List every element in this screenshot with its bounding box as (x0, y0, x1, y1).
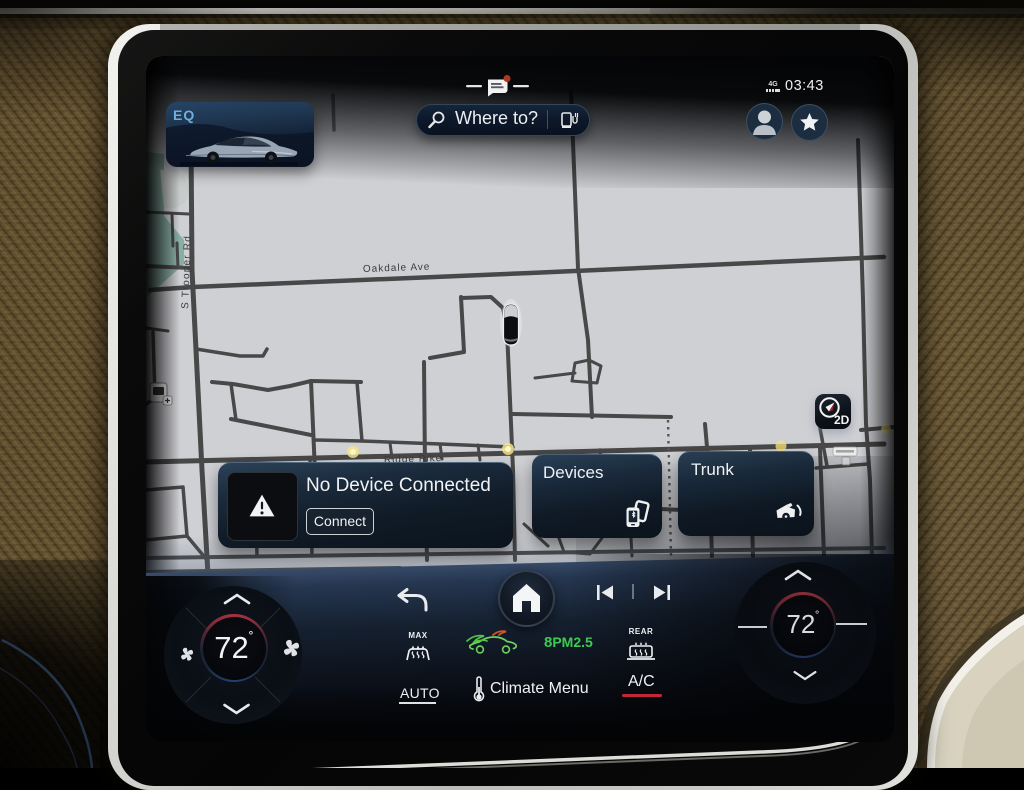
svg-text:2D: 2D (834, 413, 850, 427)
svg-text:Oakdale Ave: Oakdale Ave (363, 262, 431, 275)
